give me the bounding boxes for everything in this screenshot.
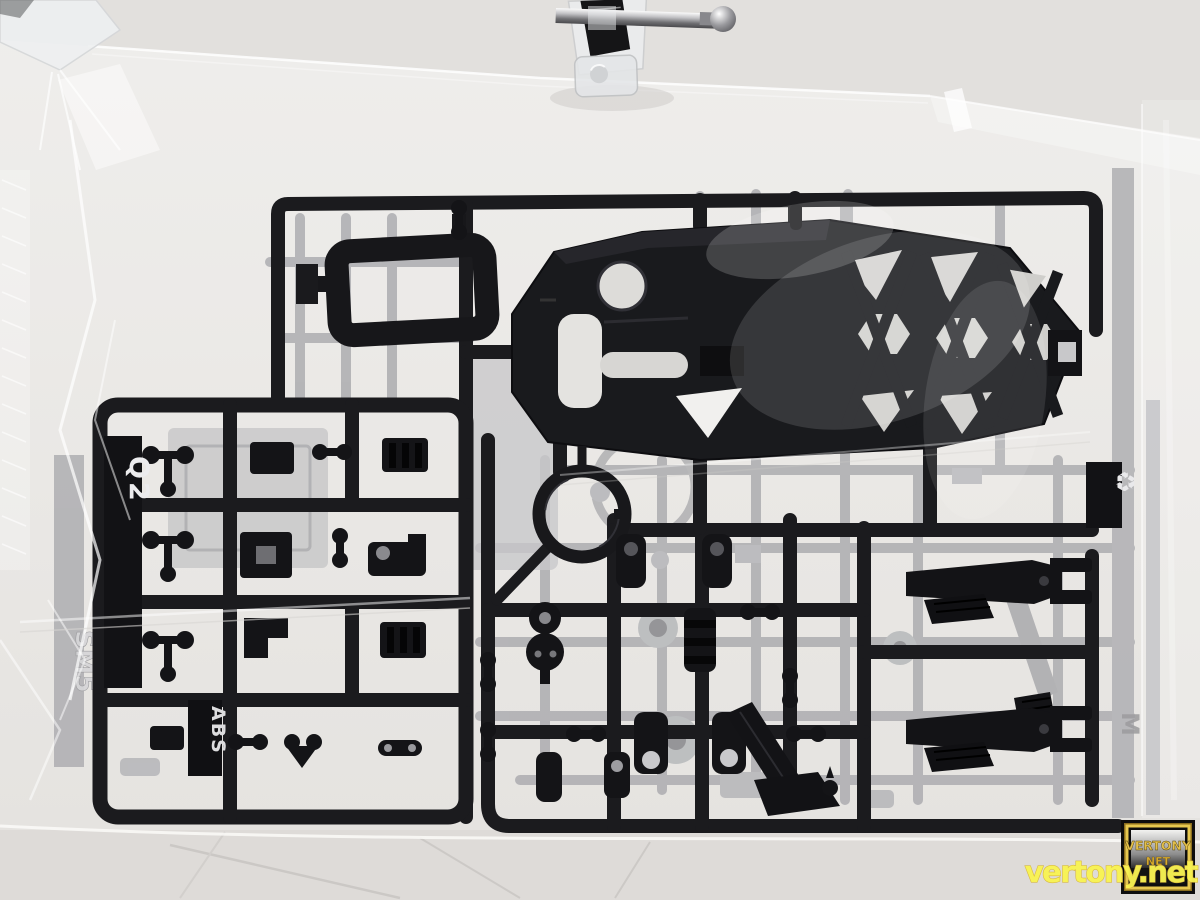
watermark-text: vertony.net [1025, 855, 1199, 889]
photo-frame: SM5 M [0, 0, 1200, 900]
material-label: ABS [207, 706, 229, 755]
recycle-icon: ♻ [1109, 470, 1139, 493]
badge-title: VERTONY [1125, 838, 1192, 853]
rod-ball-end [710, 6, 736, 32]
embossed-code-right: M [1116, 712, 1144, 736]
runner-code-label: Q2 [123, 456, 154, 504]
model-kit-photo: SM5 M [0, 0, 1200, 900]
